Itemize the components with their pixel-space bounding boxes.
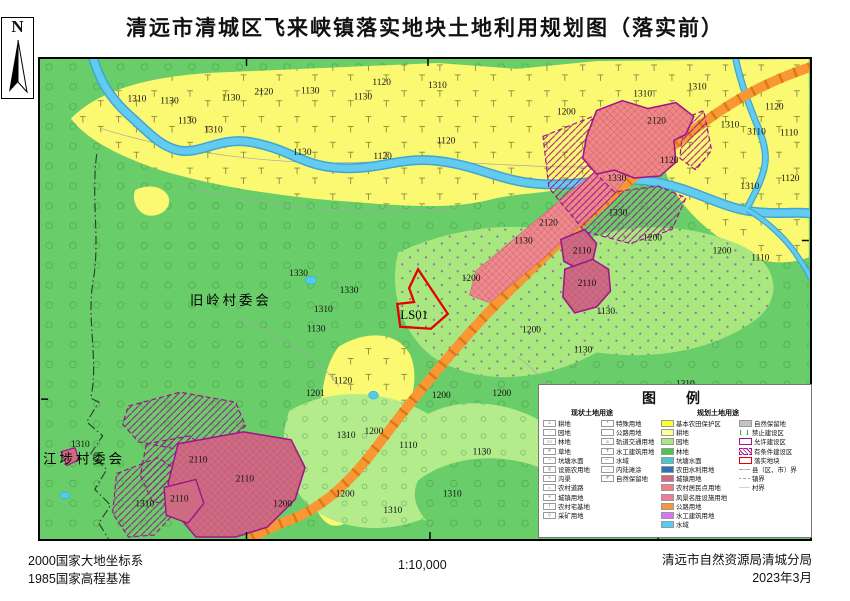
legend-symbol: #: [601, 475, 614, 482]
legend-item: 公路用地: [601, 428, 654, 437]
map-label: 1200: [462, 274, 481, 284]
legend-color-swatch: – – –: [739, 476, 750, 481]
map-label: 1310: [71, 440, 90, 450]
legend-color-swatch: [661, 484, 674, 491]
legend-color-swatch: [661, 457, 674, 464]
map-label: 1130: [160, 97, 179, 107]
legend-item: 落实地块: [739, 456, 797, 465]
legend-item: 允许建设区: [739, 437, 797, 446]
legend-symbol: ◇: [543, 512, 556, 519]
legend-item-label: 县（区、市）界: [752, 465, 797, 474]
legend-item-label: 镇界: [752, 474, 765, 483]
legend-item-label: 城镇用地: [676, 474, 702, 483]
map-label: 1130: [514, 236, 533, 246]
legend-color-swatch: [739, 457, 752, 464]
legend-symbol: ⊥: [543, 420, 556, 427]
map-label: 1130: [597, 307, 616, 317]
map-label: 2110: [573, 246, 592, 256]
legend-item-label: 基本农田保护区: [676, 419, 721, 428]
legend-item: 坑塘水面: [661, 456, 727, 465]
legend-item: ◇ 采矿用地: [543, 511, 590, 520]
legend-item: —·— 县（区、市）界: [739, 465, 797, 474]
map-label: 1330: [608, 209, 627, 219]
map-label: 2110: [189, 456, 208, 466]
legend-item: 林地: [661, 447, 727, 456]
legend-item: 有条件建设区: [739, 447, 797, 456]
map-label: 1130: [178, 116, 197, 126]
legend-symbol: ∵: [543, 429, 556, 436]
footer-datum: 2000国家大地坐标系 1985国家高程基准: [28, 552, 143, 588]
map-label: 2110: [578, 279, 597, 289]
legend-item: 风景名胜设施用地: [661, 493, 727, 502]
north-label: N: [2, 18, 33, 36]
legend-item: / 农村宅基地: [543, 502, 590, 511]
legend-item-label: 特殊用地: [616, 419, 642, 428]
legend-color-swatch: [661, 503, 674, 510]
legend-item: 水工建筑用地: [661, 511, 727, 520]
map-label: 1120: [373, 152, 392, 162]
legend-item: || 设施农用地: [543, 465, 590, 474]
legend-item-label: 采矿用地: [558, 511, 584, 520]
legend-item-label: 城镇用地: [558, 493, 584, 502]
legend-symbol: =: [543, 484, 556, 491]
legend-item-label: 公路用地: [616, 428, 642, 437]
legend-item-label: 农村道路: [558, 483, 584, 492]
map-label: 1130: [354, 93, 373, 103]
legend-symbol: *: [601, 420, 614, 427]
legend-item-label: 坑塘水面: [558, 456, 584, 465]
footer-agency: 清远市自然资源局清城分局 2023年3月: [662, 551, 812, 587]
legend-item: ∵ 园地: [543, 428, 590, 437]
legend-col-current-2: * 特殊用地 公路用地 ≡ 轨道交通用地 T 水工建筑用地 –· 水域 … 内陆…: [601, 419, 654, 483]
map-label: 1120: [334, 376, 353, 386]
legend-item-label: 园地: [558, 428, 571, 437]
legend-item-label: 坑塘水面: [676, 456, 702, 465]
legend-planned-header: 规划土地用途: [697, 408, 739, 418]
datum-line1: 2000国家大地坐标系: [28, 552, 143, 570]
legend-item: 农田水利用地: [661, 465, 727, 474]
legend-item-label: 农村居民点用地: [676, 483, 721, 492]
map-label: 1310: [721, 120, 740, 130]
legend-item: … 内陆滩涂: [601, 465, 654, 474]
legend-color-swatch: [739, 420, 752, 427]
legend-symbol: –·: [601, 457, 614, 464]
legend-item-label: 农村宅基地: [558, 502, 590, 511]
map-label: 1330: [340, 286, 359, 296]
legend-color-swatch: [739, 438, 752, 445]
map-label: 1200: [522, 326, 541, 336]
legend-color-swatch: [661, 512, 674, 519]
map-label: 2120: [254, 88, 273, 98]
map-label: 1120: [781, 174, 800, 184]
legend-item-label: 沟渠: [558, 474, 571, 483]
legend-item: 园地: [661, 437, 727, 446]
legend-item: ≈ 沟渠: [543, 474, 590, 483]
legend-item-label: 自然保留地: [616, 474, 648, 483]
map-label: 3110: [747, 127, 766, 137]
legend-item: – – – 镇界: [739, 474, 797, 483]
legend-symbol: [601, 429, 614, 436]
legend-item: # 草地: [543, 447, 590, 456]
legend-item-label: 园地: [676, 437, 689, 446]
footer-scale: 1:10,000: [398, 558, 447, 572]
map-label: 1110: [751, 253, 769, 263]
map-label: 1310: [135, 499, 154, 509]
map-label: 1120: [437, 136, 456, 146]
map-label: 2120: [539, 219, 558, 229]
legend-color-swatch: [661, 521, 674, 528]
legend-color-swatch: —·—: [739, 467, 750, 472]
page-title: 清远市清城区飞来峡镇落实地块土地利用规划图（落实前）: [0, 12, 850, 42]
map-label: LS01: [400, 308, 428, 322]
legend-item-label: 风景名胜设施用地: [676, 493, 727, 502]
map-label: 1110: [399, 441, 417, 451]
legend-symbol: T: [601, 448, 614, 455]
legend-item: 公路用地: [661, 502, 727, 511]
legend-item: ⊥ 耕地: [543, 419, 590, 428]
map-label: 1200: [273, 499, 292, 509]
map-label: 1200: [713, 246, 732, 256]
legend-color-swatch: [661, 438, 674, 445]
legend-item: 城镇用地: [661, 474, 727, 483]
legend-color-swatch: [661, 429, 674, 436]
legend-item: # 自然保留地: [601, 474, 654, 483]
legend-item: ≡ 轨道交通用地: [601, 437, 654, 446]
legend-color-swatch: [661, 420, 674, 427]
legend-symbol: ≈: [543, 475, 556, 482]
legend-item: 水域: [661, 520, 727, 529]
legend-color-swatch: [661, 466, 674, 473]
legend-item: T 水工建筑用地: [601, 447, 654, 456]
map-label: 江埗村委会: [43, 452, 125, 467]
legend-item: = 农村道路: [543, 483, 590, 492]
map-label: 2110: [236, 474, 255, 484]
legend-item-label: 落实地块: [754, 456, 780, 465]
legend-item: 自然保留地: [739, 419, 797, 428]
agency-date: 2023年3月: [662, 569, 812, 587]
legend-item-label: 草地: [558, 447, 571, 456]
legend-item-label: 轨道交通用地: [616, 437, 654, 446]
legend-color-swatch: [661, 448, 674, 455]
map-label: 1200: [336, 489, 355, 499]
legend-item: [ ] 禁止建设区: [739, 428, 797, 437]
north-arrow-icon: [3, 36, 33, 96]
legend-item-label: 有条件建设区: [754, 447, 792, 456]
map-label: 1310: [383, 506, 402, 516]
map-label: 1310: [314, 305, 333, 315]
legend-symbol: /: [543, 503, 556, 510]
legend-item-label: 林地: [676, 447, 689, 456]
legend-item: 耕地: [661, 428, 727, 437]
map-label: 1130: [473, 448, 492, 458]
map-label: 1310: [127, 95, 146, 105]
datum-line2: 1985国家高程基准: [28, 570, 143, 588]
map-label: 1310: [633, 90, 652, 100]
map-label: 旧岭村委会: [190, 293, 272, 308]
legend-item: ○○ 林地: [543, 437, 590, 446]
legend-item-label: 允许建设区: [754, 437, 786, 446]
map-label: 1201: [306, 389, 325, 399]
map-label: 1120: [660, 156, 679, 166]
legend-current-header: 现状土地用途: [571, 408, 613, 418]
map-label: 1310: [337, 431, 356, 441]
legend-color-swatch: [739, 448, 752, 455]
legend-item: 基本农田保护区: [661, 419, 727, 428]
legend-color-swatch: [661, 494, 674, 501]
legend-item: 农村居民点用地: [661, 483, 727, 492]
legend-item: * 特殊用地: [601, 419, 654, 428]
legend-color-swatch: [661, 475, 674, 482]
legend-item-label: 设施农用地: [558, 465, 590, 474]
legend-item-label: 耕地: [558, 419, 571, 428]
map-label: 1330: [607, 174, 626, 184]
map-label: 1110: [780, 128, 798, 138]
map-label: 2120: [647, 116, 666, 126]
legend-item-label: 水工建筑用地: [616, 447, 654, 456]
map-label: 1130: [307, 325, 326, 335]
legend-item-label: 林地: [558, 437, 571, 446]
legend-item-label: 水域: [616, 456, 629, 465]
legend-item-label: 水工建筑用地: [676, 511, 714, 520]
map-label: 1310: [428, 81, 447, 91]
legend-item-label: 公路用地: [676, 502, 702, 511]
legend-title: 图 例: [539, 388, 811, 408]
map-label: 1200: [643, 233, 662, 243]
map-label: 1330: [289, 269, 308, 279]
legend-symbol: …: [601, 466, 614, 473]
map-label: 1310: [204, 125, 223, 135]
legend-item-label: 耕地: [676, 428, 689, 437]
legend-symbol: #: [543, 448, 556, 455]
legend-symbol: ≡: [601, 438, 614, 445]
map-label: 2110: [170, 494, 189, 504]
legend-symbol: ○○: [543, 438, 556, 445]
map-label: 1130: [574, 346, 593, 356]
legend-symbol: ~: [543, 457, 556, 464]
legend-col-planned-2: 自然保留地 [ ] 禁止建设区 允许建设区 有条件建设区 落实地块 —·— 县（…: [739, 419, 797, 493]
legend-item: —— 村界: [739, 483, 797, 492]
page: 清远市清城区飞来峡镇落实地块土地利用规划图（落实前）: [0, 0, 850, 601]
legend-item-label: 禁止建设区: [752, 428, 784, 437]
legend-item-label: 内陆滩涂: [616, 465, 642, 474]
legend-item-label: 农田水利用地: [676, 465, 714, 474]
legend-item-label: 水域: [676, 520, 689, 529]
map-label: 1310: [740, 182, 759, 192]
map-label: 1200: [365, 427, 384, 437]
map-label: 1310: [443, 489, 462, 499]
legend: 图 例 现状土地用途 规划土地用途 ⊥ 耕地 ∵ 园地 ○○ 林地 # 草地 ~…: [538, 384, 812, 538]
legend-color-swatch: ——: [739, 485, 750, 490]
map-label: 1310: [688, 83, 707, 93]
agency-name: 清远市自然资源局清城分局: [662, 551, 812, 569]
legend-symbol: ||: [543, 466, 556, 473]
map-label: 1120: [765, 103, 784, 113]
legend-item-label: 村界: [752, 483, 765, 492]
north-arrow: N: [1, 17, 34, 99]
map-label: 1130: [301, 87, 320, 97]
legend-item: ~ 坑塘水面: [543, 456, 590, 465]
map-label: 1130: [293, 148, 312, 158]
legend-col-planned-1: 基本农田保护区 耕地 园地 林地 坑塘水面 农田水利用地 城镇用地: [661, 419, 727, 529]
map-label: 1200: [557, 108, 576, 118]
legend-item: × 城镇用地: [543, 493, 590, 502]
legend-color-swatch: [ ]: [739, 430, 750, 435]
map-label: 1120: [372, 78, 391, 88]
map-label: 1200: [432, 391, 451, 401]
legend-item: –· 水域: [601, 456, 654, 465]
map-label: 1200: [492, 389, 511, 399]
legend-col-current-1: ⊥ 耕地 ∵ 园地 ○○ 林地 # 草地 ~ 坑塘水面 || 设施农用地 ≈ 沟…: [543, 419, 590, 520]
legend-symbol: ×: [543, 494, 556, 501]
map-label: 1130: [222, 94, 241, 104]
legend-item-label: 自然保留地: [754, 419, 786, 428]
